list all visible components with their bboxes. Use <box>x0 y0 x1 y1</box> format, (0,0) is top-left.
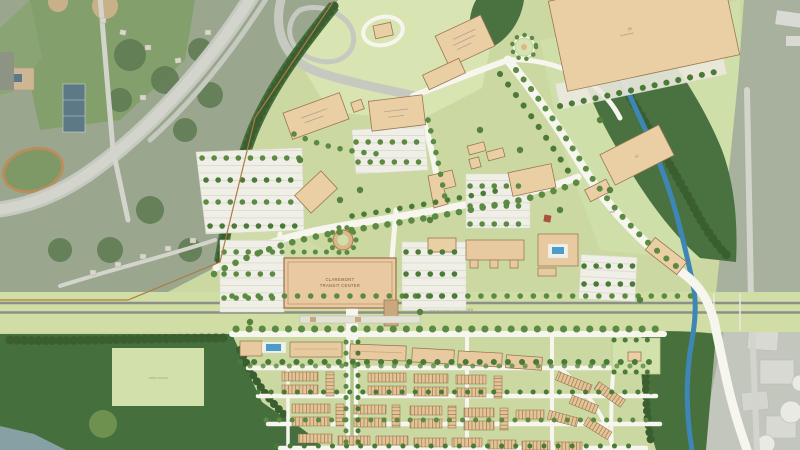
platform-canopy <box>310 317 316 322</box>
transit-center-label-2: TRANSIT CENTER <box>320 283 360 288</box>
site-plan-screenshot: EXISTING RAIL ROAD OPEN SPACE <box>0 0 800 450</box>
storage-tank <box>780 401 800 423</box>
master-plan-map: EXISTING RAIL ROAD OPEN SPACE <box>0 0 800 450</box>
small-building <box>469 157 481 169</box>
swimming-pool <box>266 344 281 351</box>
office-building <box>368 95 425 131</box>
swimming-pool <box>552 247 564 254</box>
parking-aerial <box>0 52 14 90</box>
rail-corridor-band: EXISTING RAIL ROAD <box>0 292 800 332</box>
platform-canopy <box>355 317 361 322</box>
neighborhood-park-square <box>612 338 660 374</box>
apartment-building-wings <box>466 240 524 268</box>
plaza-feature <box>543 215 551 223</box>
transit-center-label-1: CLAREMONT <box>326 277 355 282</box>
parking-lot <box>196 148 304 234</box>
tennis-courts <box>63 84 85 132</box>
open-space-label: OPEN SPACE <box>148 376 167 380</box>
